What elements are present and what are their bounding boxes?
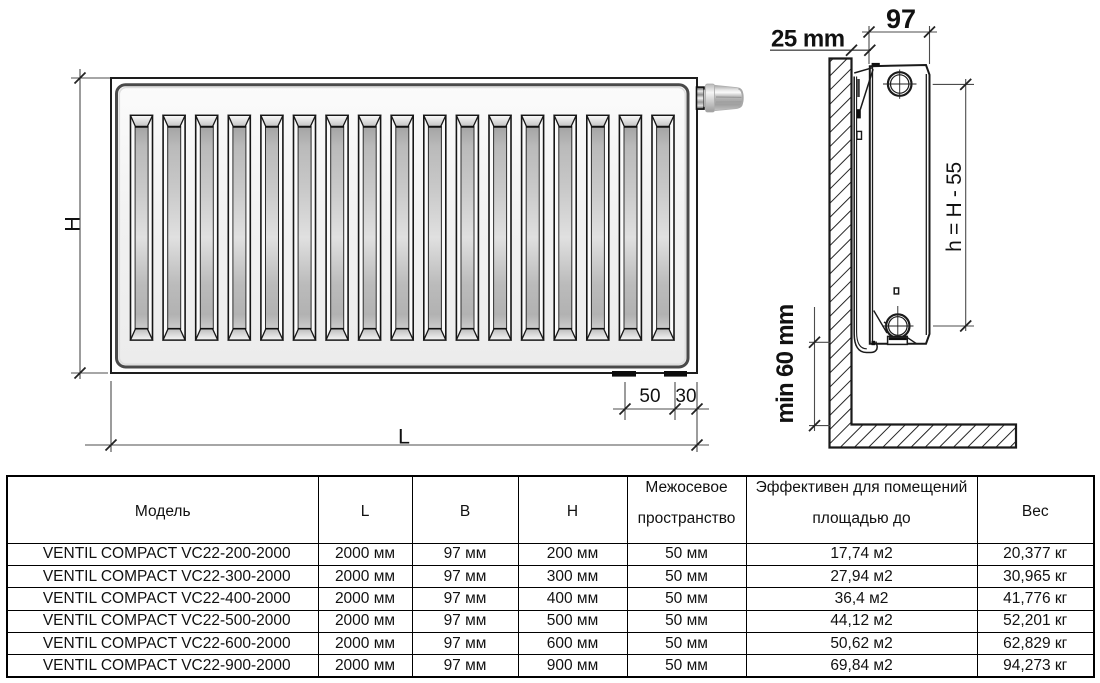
- svg-text:25 mm: 25 mm: [771, 26, 845, 53]
- svg-text:min 60 mm: min 60 mm: [772, 304, 799, 423]
- svg-text:50: 50: [639, 386, 660, 407]
- svg-text:L: L: [398, 425, 410, 449]
- svg-text:h = H - 55: h = H - 55: [943, 162, 966, 252]
- svg-text:97: 97: [886, 4, 916, 34]
- svg-text:30: 30: [675, 386, 696, 407]
- svg-text:H: H: [61, 216, 85, 232]
